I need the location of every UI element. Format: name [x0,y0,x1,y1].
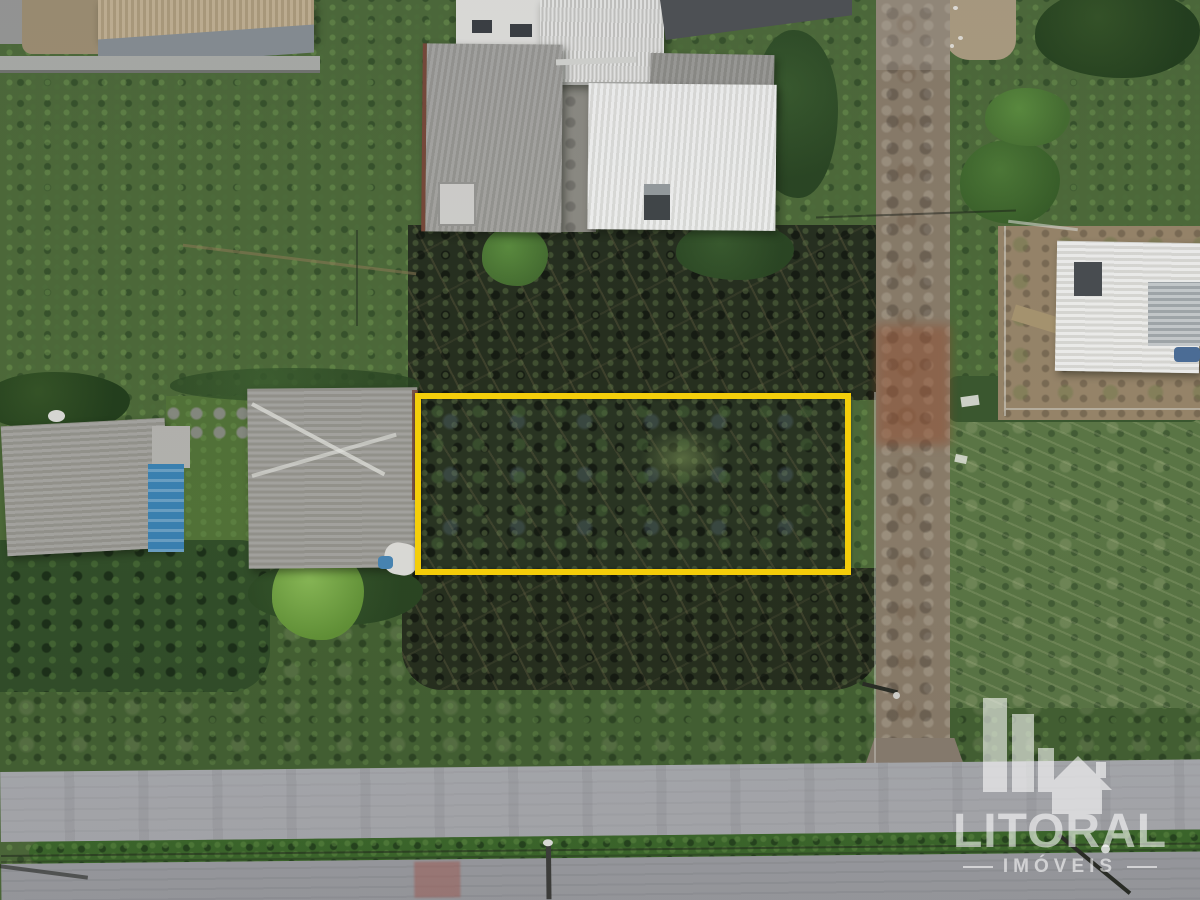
bush-by-dirt-road [985,88,1070,146]
fallen-branch [183,244,417,276]
gray-panel [152,426,190,468]
roof-vent-dark [644,184,670,220]
window-dark [510,24,532,37]
window-dark [472,20,492,33]
white-debris [958,36,963,40]
yard-fence-bottom [1006,408,1200,410]
tree-mass-above-lot [676,222,794,280]
brand-subtitle-row: IMÓVEIS [920,856,1200,878]
bush-near-lot-corner [482,226,548,286]
dirt-road-red-band [876,325,950,445]
dirt-road-light-top [876,0,950,70]
yard-fence-left [1004,226,1006,416]
logo-building-bar [983,698,1007,792]
white-house-center [587,83,776,231]
blue-tarp [148,464,184,552]
crosswalk-red-patch [414,861,460,897]
gray-house-far-left [1,418,172,556]
blue-object [378,556,393,569]
satellite-dish [48,410,65,422]
watermark: LITORAL IMÓVEIS [920,688,1200,888]
tree-cluster-topright-corner [1035,0,1200,78]
subtitle-dash [963,866,993,868]
dry-grass-field [948,408,1200,708]
logo-chimney-icon [1096,762,1106,778]
brand-subtitle: IMÓVEIS [1003,856,1117,878]
utility-pole [546,842,552,899]
wetland-lower [402,568,882,690]
chimney-white [438,182,476,226]
stick [356,230,358,326]
shrub-mass-bottom-left [0,540,270,692]
white-debris [950,44,954,48]
white-debris [953,6,958,10]
dirt-road [876,0,950,770]
logo-building-bar [1012,714,1034,792]
utility-pole-cap [543,839,553,846]
brand-name: LITORAL [920,808,1200,856]
gray-roof-section [1148,282,1200,346]
asphalt-drive [660,0,852,40]
fence-line-roadside [874,392,876,764]
wetland-upper [408,225,880,400]
lot-boundary-highlight [415,393,851,575]
street-lamp-head [893,692,900,699]
blue-car [1174,347,1200,362]
boundary-wall [0,56,320,73]
white-house-with-windows [456,0,548,50]
aerial-photo-scene: LITORAL IMÓVEIS [0,0,1200,900]
subtitle-dash [1127,866,1157,868]
roof-gap-dark [1074,262,1102,296]
